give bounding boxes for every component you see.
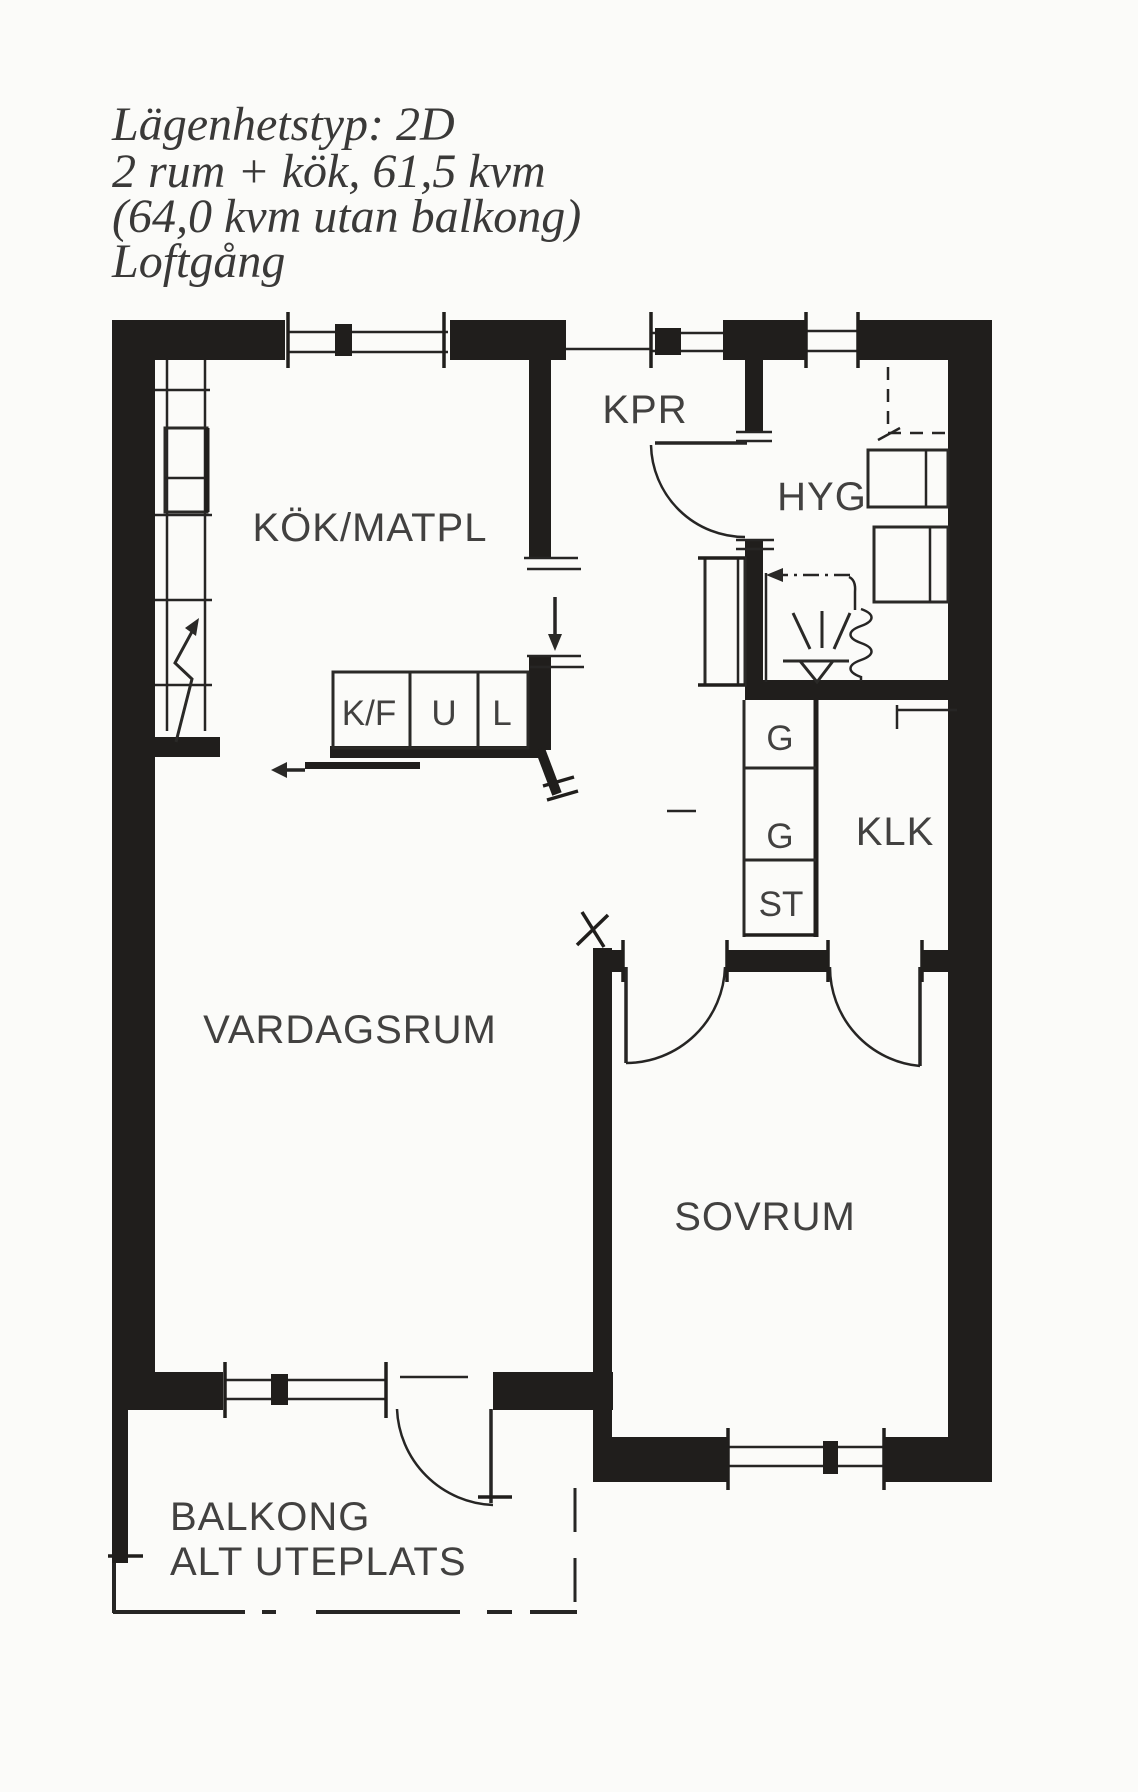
vent-shaft <box>878 367 948 440</box>
room-label-bedroom: SOVRUM <box>674 1195 856 1239</box>
doors <box>397 432 922 1505</box>
bedroom-door <box>626 967 725 1063</box>
room-label-balcony-1: BALKONG <box>170 1495 370 1539</box>
room-label-bathroom: HYG <box>777 475 867 519</box>
washing-machine <box>874 527 948 602</box>
sink <box>165 428 207 512</box>
bathroom-door <box>651 432 774 549</box>
left-arrow <box>271 762 305 778</box>
living-room-window <box>225 1362 386 1418</box>
radiator-coil <box>851 609 872 681</box>
bathroom-window <box>805 312 859 368</box>
kitchen-fixtures <box>155 360 584 800</box>
entry-sidelight-window <box>650 312 723 368</box>
label-fridge-freezer: K/F <box>342 694 396 733</box>
wall-junction-ticks <box>577 912 608 947</box>
down-arrow <box>548 597 562 651</box>
washbasin <box>868 450 948 507</box>
shower <box>766 568 855 682</box>
label-oven: U <box>431 694 456 733</box>
floor-plan: Lägenhetstyp: 2D 2 rum + kök, 61,5 kvm (… <box>0 0 1138 1792</box>
label-wardrobe-1: G <box>766 719 793 758</box>
room-label-balcony-2: ALT UTEPLATS <box>170 1540 467 1584</box>
room-label-living-room: VARDAGSRUM <box>203 1008 497 1052</box>
bedroom-window <box>728 1428 884 1490</box>
room-label-walk-in-closet: KLK <box>856 810 935 854</box>
label-cabinet: L <box>492 694 511 733</box>
room-label-entry: KPR <box>602 388 687 432</box>
entry-wardrobe <box>698 558 745 685</box>
closet-door <box>830 967 920 1066</box>
kitchen-window <box>288 312 448 368</box>
label-wardrobe-2: G <box>766 817 793 856</box>
bathroom-fixtures <box>766 367 957 729</box>
room-label-kitchen: KÖK/MATPL <box>253 506 488 550</box>
label-storage: ST <box>759 885 804 924</box>
header-line-4: Loftgång <box>111 235 285 288</box>
header-line-1: Lägenhetstyp: 2D <box>111 98 455 151</box>
header-text: Lägenhetstyp: 2D 2 rum + kök, 61,5 kvm (… <box>111 98 581 288</box>
stove-symbol <box>175 618 199 742</box>
